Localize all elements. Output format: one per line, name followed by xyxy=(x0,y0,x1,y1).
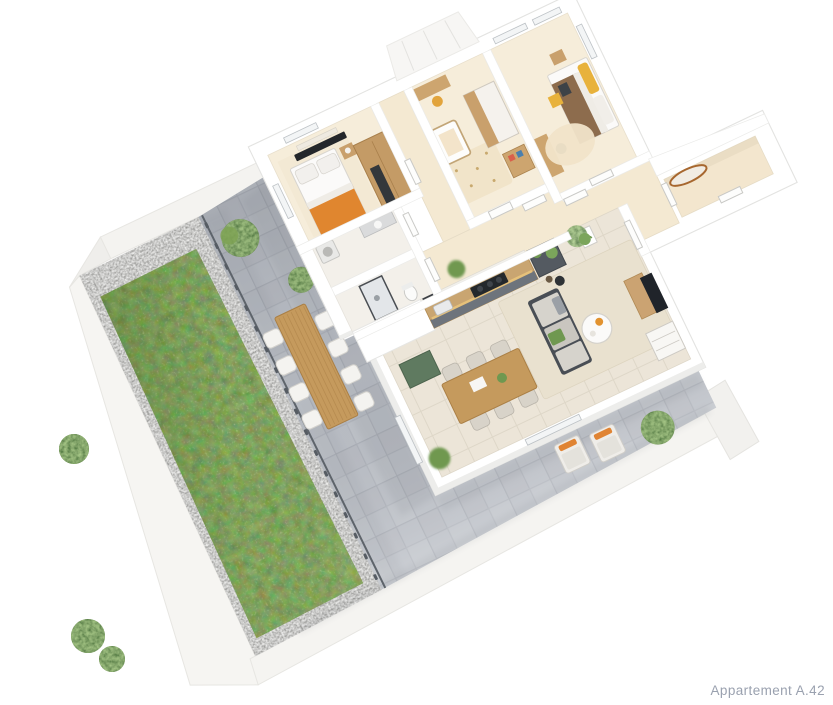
svg-text:Appartement A.42: Appartement A.42 xyxy=(711,683,825,698)
